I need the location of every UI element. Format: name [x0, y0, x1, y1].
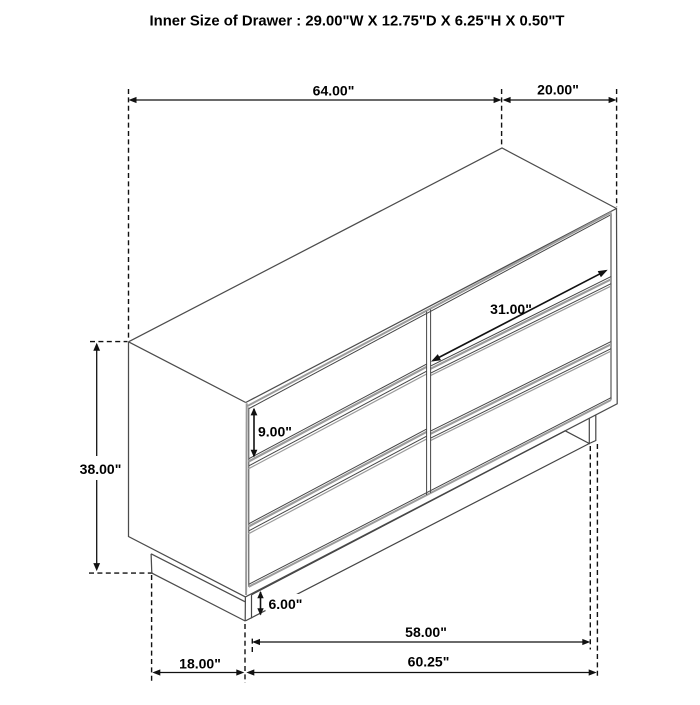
svg-text:6.00": 6.00" [269, 596, 303, 612]
svg-text:58.00": 58.00" [405, 624, 447, 640]
svg-text:Inner Size of Drawer : 29.00"W: Inner Size of Drawer : 29.00"W X 12.75"D… [150, 13, 565, 30]
svg-text:60.25": 60.25" [408, 654, 450, 670]
svg-text:9.00": 9.00" [258, 424, 292, 440]
svg-text:64.00": 64.00" [313, 83, 355, 99]
svg-text:38.00": 38.00" [80, 461, 122, 477]
svg-text:31.00": 31.00" [490, 301, 532, 317]
svg-text:18.00": 18.00" [179, 656, 221, 672]
svg-text:20.00": 20.00" [537, 82, 579, 98]
